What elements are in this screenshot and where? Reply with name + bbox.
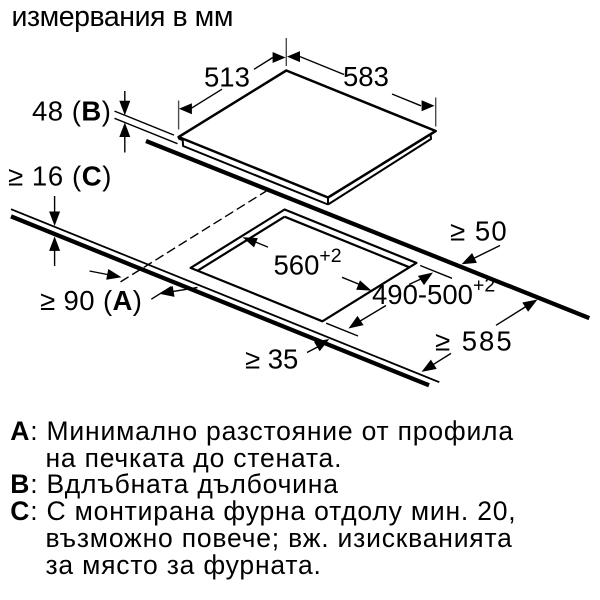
svg-text:513: 513 [204,62,250,93]
svg-text:560+2: 560+2 [274,245,342,281]
svg-text:≥ 585: ≥ 585 [435,326,514,357]
svg-text:≥ 16 (C): ≥ 16 (C) [8,161,112,192]
svg-text:48 (B): 48 (B) [32,95,111,126]
svg-text:≥ 50: ≥ 50 [450,216,508,247]
svg-text:583: 583 [343,61,389,92]
svg-text:490-500+2: 490-500+2 [372,275,495,311]
svg-text:≥ 90 (A): ≥ 90 (A) [40,285,142,316]
svg-text:≥ 35: ≥ 35 [245,344,298,375]
